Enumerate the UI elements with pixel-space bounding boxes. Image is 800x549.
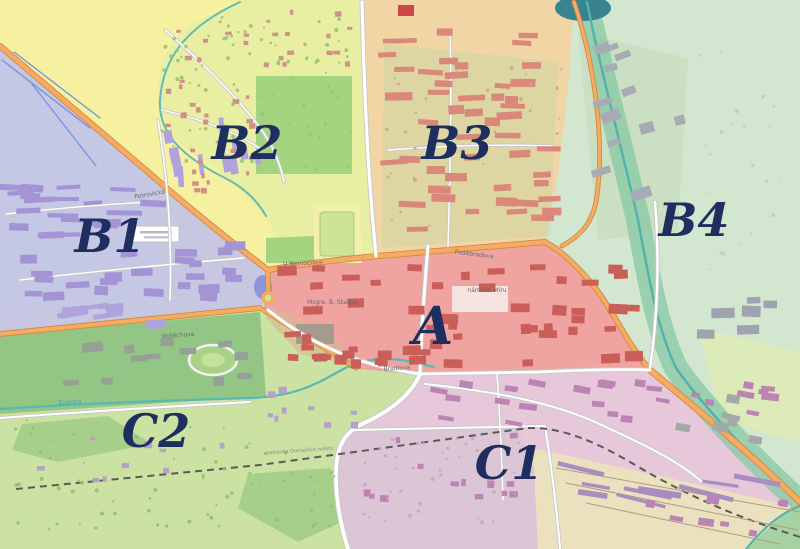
building (204, 113, 208, 117)
building (351, 359, 362, 369)
tree-dot (314, 167, 317, 170)
tree-dot (422, 442, 425, 445)
tree-dot (175, 77, 179, 81)
building (192, 169, 197, 174)
tree-dot (305, 165, 308, 168)
tree-dot (14, 427, 17, 430)
tree-dot (176, 59, 180, 63)
tree-dot (277, 60, 280, 63)
tree-dot (161, 129, 164, 132)
building (272, 32, 278, 36)
tree-dot (313, 493, 316, 496)
building (571, 315, 584, 323)
building (448, 105, 464, 115)
building (282, 62, 286, 67)
tree-dot (318, 20, 321, 23)
tree-dot (765, 179, 768, 182)
tree-dot (189, 82, 191, 84)
tree-dot (202, 164, 205, 167)
building (351, 422, 359, 429)
tree-dot (15, 483, 19, 487)
tree-dot (428, 225, 430, 227)
building (533, 171, 551, 178)
tree-dot (169, 54, 173, 58)
tree-dot (761, 95, 765, 99)
zone-label-b1: B1 (73, 209, 146, 263)
tree-dot (185, 159, 189, 163)
tree-dot (478, 518, 480, 520)
building (131, 268, 153, 276)
tree-dot (362, 513, 365, 516)
building (625, 351, 643, 362)
building (284, 331, 301, 338)
tree-dot (266, 87, 268, 89)
building (539, 330, 557, 338)
tree-dot (315, 61, 318, 64)
roundabout (263, 293, 273, 303)
tree-dot (282, 479, 286, 483)
building (385, 92, 413, 101)
building (266, 20, 270, 23)
tree-dot (309, 476, 312, 479)
building (186, 273, 205, 280)
building (370, 280, 380, 286)
building (333, 51, 340, 55)
tree-dot (318, 136, 321, 139)
tree-dot (453, 64, 455, 66)
building (165, 124, 170, 128)
building (92, 478, 99, 482)
building (601, 353, 620, 363)
building (185, 56, 192, 61)
tree-dot (399, 155, 401, 157)
tree-dot (417, 509, 420, 512)
tree-dot (31, 426, 34, 429)
tree-dot (204, 127, 208, 131)
tree-dot (227, 24, 230, 27)
tree-dot (316, 479, 319, 482)
tree-dot (395, 456, 397, 458)
tree-dot (77, 479, 80, 482)
tree-dot (743, 125, 746, 128)
tree-dot (720, 51, 722, 53)
tree-dot (153, 488, 157, 492)
tree-dot (394, 77, 396, 79)
tree-dot (368, 516, 370, 518)
building (166, 89, 171, 94)
tree-dot (404, 130, 407, 133)
building (34, 276, 53, 283)
building (122, 463, 130, 468)
building (378, 52, 396, 58)
tree-dot (258, 484, 260, 486)
tree-dot (408, 514, 412, 518)
tree-dot (248, 472, 251, 475)
c2-stadium-infield (201, 353, 225, 367)
building (16, 207, 40, 213)
tree-dot (237, 31, 239, 33)
building (431, 194, 455, 203)
building (435, 80, 453, 87)
tree-dot (287, 134, 289, 136)
building (90, 437, 95, 441)
building (511, 303, 530, 312)
tree-dot (493, 98, 495, 100)
tree-dot (243, 30, 246, 33)
building (234, 352, 248, 361)
building (303, 306, 323, 315)
tree-dot (330, 505, 333, 508)
building (287, 51, 294, 55)
map-viewport: PetrovickáU NemocnicePoděbradovanáměstí … (0, 0, 800, 549)
building (509, 150, 530, 158)
tree-dot (384, 454, 387, 457)
tree-dot (391, 438, 394, 441)
tree-dot (113, 512, 117, 516)
tree-dot (456, 437, 459, 440)
building (592, 401, 605, 408)
street-label: Msgre. B. Staška (307, 299, 357, 306)
tree-dot (83, 462, 85, 464)
building (342, 275, 360, 281)
tree-dot (455, 71, 457, 73)
tree-dot (338, 61, 340, 63)
tree-dot (245, 445, 249, 449)
building (279, 56, 284, 60)
tree-dot (40, 477, 44, 481)
building (705, 399, 714, 406)
building (313, 353, 327, 361)
tree-dot (772, 105, 775, 108)
tree-dot (529, 82, 532, 85)
zone-label-c2: C2 (122, 404, 191, 458)
tree-dot (494, 130, 497, 133)
building (285, 32, 290, 36)
tree-dot (390, 172, 392, 174)
tree-dot (464, 443, 467, 446)
tree-dot (197, 84, 200, 87)
building (335, 11, 342, 17)
tree-dot (223, 426, 225, 428)
building (607, 411, 618, 417)
tree-dot (431, 477, 435, 481)
tree-dot (446, 447, 449, 450)
tree-dot (222, 467, 225, 470)
building (194, 188, 200, 192)
tree-dot (416, 442, 419, 445)
building (530, 264, 546, 270)
tree-dot (525, 73, 527, 75)
tree-dot (263, 26, 265, 28)
building (274, 415, 278, 421)
tree-dot (56, 522, 59, 525)
building (466, 209, 480, 214)
tree-dot (441, 452, 443, 454)
building (47, 213, 78, 218)
building (179, 348, 196, 354)
building (407, 226, 428, 231)
tree-dot (389, 491, 391, 493)
tree-dot (180, 56, 182, 58)
tree-dot (157, 524, 160, 527)
tree-dot (48, 528, 51, 531)
building (20, 255, 37, 264)
tree-dot (201, 64, 203, 66)
building (207, 180, 210, 184)
building (190, 148, 195, 152)
tree-dot (308, 132, 312, 136)
street-label: Bradlova (383, 364, 410, 372)
building (175, 257, 195, 265)
building (491, 94, 504, 101)
tree-dot (187, 520, 191, 524)
tree-dot (379, 448, 382, 451)
tree-dot (330, 91, 333, 94)
building (522, 359, 533, 366)
tree-dot (173, 458, 175, 460)
tree-dot (751, 164, 754, 167)
tree-dot (555, 87, 558, 90)
building (568, 326, 577, 335)
tree-dot (95, 488, 99, 492)
tree-dot (328, 524, 331, 527)
building (288, 354, 299, 361)
b2-stadium (320, 212, 354, 256)
building (218, 247, 233, 255)
tree-dot (445, 458, 447, 460)
building (43, 291, 65, 301)
tree-dot (289, 123, 291, 125)
building (246, 95, 250, 98)
building (31, 271, 53, 276)
tree-dot (291, 473, 293, 475)
building (342, 351, 354, 359)
tree-dot (165, 524, 169, 528)
building (345, 61, 350, 66)
tree-dot (303, 43, 307, 47)
tree-dot (346, 165, 349, 168)
tree-dot (493, 490, 496, 493)
tree-dot (163, 45, 167, 49)
tree-dot (311, 524, 315, 528)
tree-dot (396, 468, 398, 470)
tree-dot (415, 112, 417, 114)
tree-dot (333, 475, 335, 477)
building (246, 171, 249, 175)
building (505, 96, 518, 104)
tree-dot (147, 509, 151, 513)
building (409, 356, 426, 365)
tree-dot (492, 520, 494, 522)
tree-dot (397, 82, 400, 85)
building (779, 499, 788, 507)
building (428, 90, 450, 95)
building (496, 197, 517, 207)
street-label: náměstí Míru (467, 287, 506, 294)
building (310, 282, 323, 290)
tree-dot (207, 34, 210, 37)
zone-label-c1: C1 (475, 436, 544, 490)
tree-dot (80, 481, 84, 485)
building (220, 443, 225, 449)
tree-dot (413, 177, 416, 180)
building (495, 133, 521, 139)
building (582, 280, 599, 286)
tree-dot (325, 43, 329, 47)
tree-dot (315, 522, 318, 525)
building (445, 173, 467, 181)
building (461, 272, 470, 281)
building (244, 34, 249, 37)
tree-dot (324, 123, 327, 126)
tree-dot (251, 483, 253, 485)
building (197, 57, 201, 62)
tree-dot (249, 24, 253, 28)
building (487, 268, 504, 275)
tree-dot (779, 178, 781, 180)
tree-dot (399, 489, 402, 492)
tree-dot (219, 20, 222, 23)
tree-dot (720, 130, 724, 134)
tree-dot (507, 88, 509, 90)
building (192, 181, 199, 186)
building (502, 491, 508, 496)
tree-dot (386, 176, 389, 179)
building (9, 223, 29, 231)
building (495, 83, 511, 89)
tree-dot (699, 54, 702, 57)
building (571, 308, 585, 315)
building (203, 39, 208, 43)
tree-dot (334, 28, 338, 32)
building (450, 481, 459, 486)
tree-dot (514, 493, 516, 495)
tree-dot (261, 96, 263, 98)
building (25, 291, 42, 297)
tree-dot (510, 66, 514, 70)
tree-dot (469, 100, 471, 102)
building (101, 378, 112, 385)
map-canvas: PetrovickáU NemocnicePoděbradovanáměstí … (0, 0, 800, 549)
building (747, 297, 760, 304)
building (444, 359, 463, 368)
tree-dot (275, 518, 279, 522)
building (521, 324, 531, 335)
building (394, 67, 414, 72)
tree-dot (73, 433, 76, 436)
building (509, 491, 518, 497)
building (364, 489, 371, 496)
tree-dot (363, 483, 367, 487)
tree-dot (286, 60, 290, 64)
building (268, 413, 273, 417)
building (308, 406, 314, 410)
tree-dot (385, 128, 388, 131)
building (66, 281, 90, 289)
building (620, 415, 632, 423)
tree-dot (386, 497, 389, 500)
tree-dot (16, 521, 19, 524)
tree-dot (519, 97, 523, 101)
tree-dot (709, 268, 711, 270)
tree-dot (391, 219, 393, 221)
building (104, 272, 122, 282)
tree-dot (223, 36, 227, 40)
tree-dot (184, 45, 188, 49)
tree-dot (735, 109, 739, 113)
building (198, 284, 220, 294)
tree-dot (215, 504, 217, 506)
tree-dot (274, 44, 276, 46)
tree-dot (419, 502, 423, 506)
building (494, 184, 512, 192)
tree-dot (486, 89, 489, 92)
building (201, 188, 207, 194)
building (222, 267, 236, 275)
tree-dot (399, 210, 402, 213)
building (396, 437, 401, 443)
tree-dot (162, 68, 166, 72)
tree-dot (199, 128, 201, 130)
tree-dot (79, 522, 81, 524)
building (496, 111, 522, 120)
tree-dot (206, 513, 209, 516)
tree-dot (230, 35, 233, 38)
tree-dot (176, 49, 179, 52)
b1-map-note-line2 (144, 236, 168, 239)
tree-dot (236, 88, 240, 92)
street-label: Zubřina (58, 398, 82, 406)
building (175, 249, 197, 257)
building (203, 119, 208, 124)
building (351, 411, 357, 415)
building (290, 10, 293, 15)
tree-dot (769, 215, 771, 217)
b3-highlight-building (398, 5, 414, 16)
building (196, 107, 201, 113)
tree-dot (71, 489, 75, 493)
tree-dot (189, 129, 192, 132)
tree-dot (345, 126, 347, 128)
tree-dot (194, 68, 197, 71)
building (37, 466, 45, 471)
tree-dot (248, 52, 251, 55)
building (514, 199, 538, 207)
tree-dot (337, 17, 341, 21)
tree-dot (709, 153, 711, 155)
building (538, 196, 560, 202)
building (302, 334, 312, 345)
tree-dot (172, 145, 174, 147)
tree-dot (232, 43, 235, 46)
tree-dot (260, 38, 263, 41)
building (143, 353, 160, 359)
tree-dot (346, 55, 349, 58)
building (264, 62, 269, 67)
building (201, 174, 205, 179)
building (453, 333, 463, 340)
tree-dot (384, 520, 386, 522)
building (179, 84, 183, 89)
building (178, 282, 190, 289)
building (268, 391, 276, 398)
building (645, 499, 655, 508)
building (608, 264, 623, 273)
tree-dot (26, 419, 28, 421)
tree-dot (269, 42, 272, 45)
tree-dot (306, 56, 308, 58)
zone-label-b3: B3 (420, 116, 493, 170)
